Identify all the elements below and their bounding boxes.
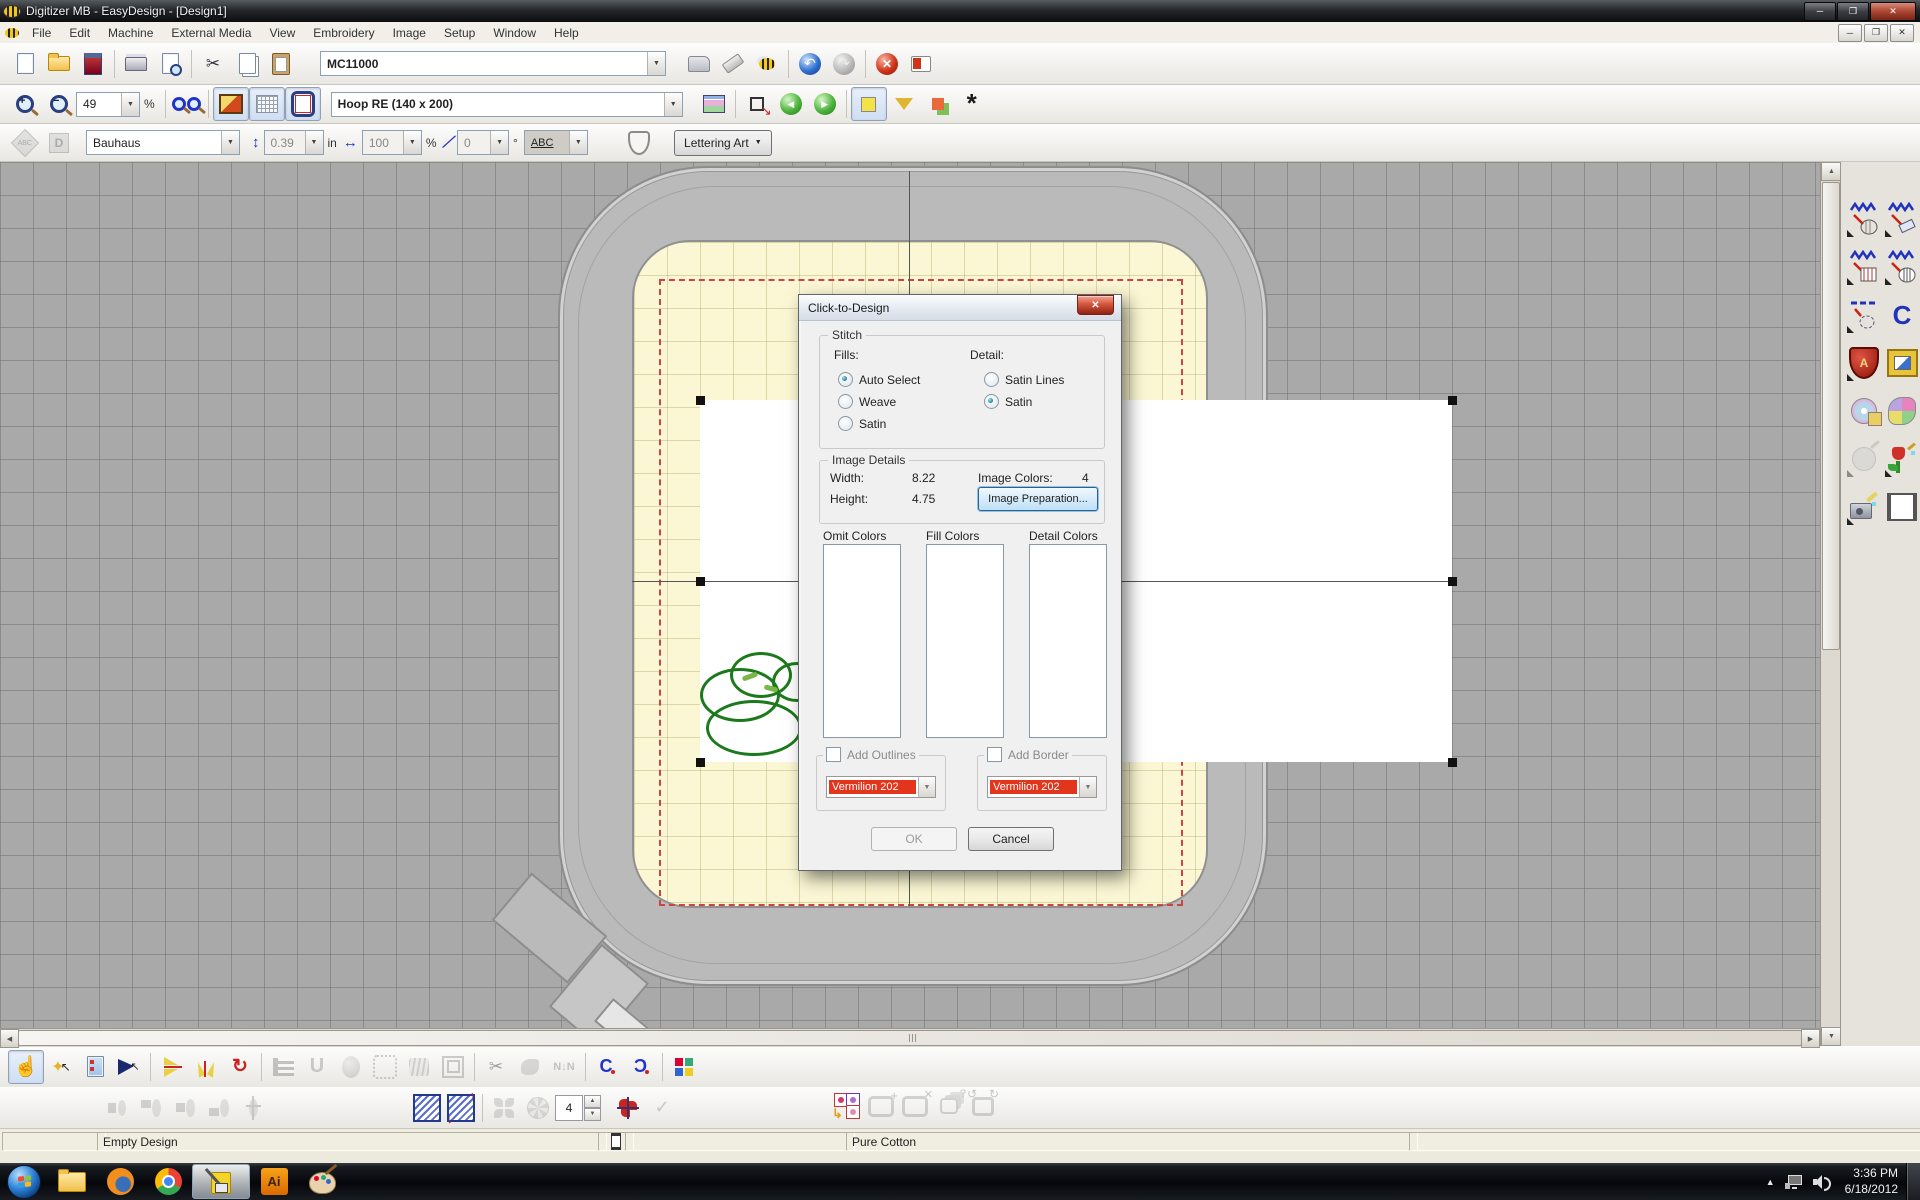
magic-wand-select-icon[interactable]: ✦↖: [44, 1051, 78, 1083]
radio-weave-icon[interactable]: [838, 394, 853, 409]
dialog-title-bar[interactable]: Click-to-Design: [799, 295, 1121, 321]
new-icon[interactable]: [8, 48, 42, 80]
shield-icon[interactable]: [622, 127, 656, 159]
letter-height-icon: ↕: [252, 134, 260, 151]
radio-satin-fill-icon[interactable]: [838, 416, 853, 431]
width-label: Width:: [830, 471, 864, 485]
monogram-abc-icon[interactable]: ABC: [8, 127, 42, 159]
hoop-select[interactable]: Hoop RE (140 x 200) ▼: [331, 92, 683, 117]
firefox-icon[interactable]: [96, 1164, 144, 1199]
letter-height-input[interactable]: 0.39 ▼: [264, 130, 324, 155]
stipple-fill-icon[interactable]: [368, 1051, 402, 1083]
texture-icon[interactable]: [513, 1051, 547, 1083]
baseline-select-value: ABC: [525, 137, 560, 149]
color-film-icon[interactable]: ↳: [830, 1090, 864, 1122]
spiral-fill-icon[interactable]: [436, 1051, 470, 1083]
stitch-group: Stitch Fills: Detail: Auto Select Weave …: [819, 335, 1105, 449]
machine-select-arrow-icon[interactable]: ▼: [647, 52, 665, 75]
curve-clockwise-icon[interactable]: C: [590, 1051, 624, 1083]
thread-colors-icon[interactable]: [667, 1051, 701, 1083]
paste-icon[interactable]: [264, 48, 298, 80]
menu-help[interactable]: Help: [545, 24, 588, 42]
align-bottom-icon[interactable]: [202, 1092, 236, 1124]
align-center-icon[interactable]: [168, 1092, 202, 1124]
image-colors-label: Image Colors:: [978, 471, 1053, 485]
add-border-check-icon[interactable]: [987, 747, 1002, 762]
status-bar: Empty Design Pure Cotton: [0, 1130, 1920, 1152]
vertical-scrollbar[interactable]: ▲ ▼: [1820, 162, 1841, 1046]
fill-stitch-ribbon-icon[interactable]: [1884, 200, 1920, 238]
detail-colors-label: Detail Colors: [1029, 529, 1098, 543]
picture-frame-icon[interactable]: [1884, 344, 1920, 382]
satin-fill-icon[interactable]: [1884, 248, 1920, 286]
add-hoop-icon[interactable]: +: [864, 1090, 898, 1122]
speaker-icon[interactable]: [1813, 1175, 1831, 1189]
baseline-select[interactable]: ABC ▼: [524, 130, 588, 155]
height-unit-label: in: [328, 136, 337, 150]
title-bar: Digitizer MB - EasyDesign - [Design1] ─ …: [0, 0, 1920, 22]
letter-height-value: 0.39: [265, 136, 300, 150]
zoom-unit-label: %: [144, 97, 155, 111]
wreath-icon[interactable]: [487, 1092, 521, 1124]
add-border-checkbox[interactable]: Add Border: [984, 747, 1072, 762]
show-objects-toggle[interactable]: [851, 87, 887, 121]
scroll-right-icon[interactable]: ▶: [1801, 1029, 1820, 1048]
detail-colors-list[interactable]: [1029, 544, 1107, 738]
add-outlines-group: Add Outlines Vermilion 202 ▼: [816, 755, 946, 811]
angle-unit-label: °: [513, 136, 518, 150]
letter-height-arrow-icon[interactable]: ▼: [305, 131, 323, 154]
selection-handle[interactable]: [1448, 758, 1457, 767]
letter-width-icon: ↔: [343, 134, 358, 151]
radio-weave[interactable]: Weave: [838, 394, 896, 409]
selection-handle[interactable]: [696, 396, 705, 405]
omit-colors-list[interactable]: [823, 544, 901, 738]
mirror-fan-icon[interactable]: [189, 1051, 223, 1083]
letter-slant-icon: ⟋: [443, 134, 454, 151]
add-border-group: Add Border Vermilion 202 ▼: [977, 755, 1107, 811]
menu-file[interactable]: File: [23, 24, 60, 42]
hoop-sequence-icon[interactable]: ?: [932, 1090, 966, 1122]
height-value: 4.75: [912, 492, 935, 506]
radio-satin-detail[interactable]: Satin: [984, 394, 1032, 409]
menu-view[interactable]: View: [260, 24, 304, 42]
backdrop-toggle[interactable]: [213, 87, 249, 121]
bee-icon[interactable]: [750, 48, 784, 80]
zoom-level-input[interactable]: 49 ▼: [76, 92, 140, 117]
application-window: Digitizer MB - EasyDesign - [Design1] ─ …: [0, 0, 1920, 1200]
weave-fill-icon[interactable]: [1846, 248, 1882, 286]
align-center-vertical-icon[interactable]: [134, 1092, 168, 1124]
scroll-down-icon[interactable]: ▼: [1821, 1027, 1842, 1046]
monogram-c-icon[interactable]: C: [1884, 296, 1920, 334]
flower-icon[interactable]: *: [955, 88, 989, 120]
image-preparation-button[interactable]: Image Preparation...: [978, 487, 1098, 511]
design-status: Empty Design: [97, 1132, 607, 1151]
zoom-level-value: 49: [77, 97, 102, 111]
edit-toolbar: ☝ ✦↖ ↖ ↻ U ✂ N↓N C C: [0, 1046, 1920, 1088]
radio-satin-fill[interactable]: Satin: [838, 416, 886, 431]
delete-hoop-icon[interactable]: ✕: [898, 1090, 932, 1122]
menu-window[interactable]: Window: [484, 24, 545, 42]
app-icon: [4, 6, 20, 17]
clipart-shape: [706, 700, 802, 756]
font-select[interactable]: Bauhaus ▼: [86, 130, 240, 155]
curve-counterclockwise-icon[interactable]: C: [624, 1051, 658, 1083]
radio-satin-lines-icon[interactable]: [984, 372, 999, 387]
chrome-icon[interactable]: [144, 1164, 192, 1199]
hatch-fill-toggle[interactable]: [410, 1092, 444, 1124]
status-cell-spacer: [625, 1132, 855, 1151]
fills-label: Fills:: [834, 348, 859, 362]
fill-colors-list[interactable]: [926, 544, 1004, 738]
stitch-group-label: Stitch: [828, 328, 866, 342]
back-icon[interactable]: ◀: [774, 88, 808, 120]
cut-icon[interactable]: ✂: [196, 48, 230, 80]
document-icon: [5, 28, 19, 38]
window-title: Digitizer MB - EasyDesign - [Design1]: [26, 4, 227, 18]
clock[interactable]: 3:36 PM 6/18/2012: [1845, 1166, 1898, 1197]
comb-fill-icon[interactable]: [266, 1051, 300, 1083]
print-preview-icon[interactable]: [153, 48, 187, 80]
color-photo-stitch-icon[interactable]: [1884, 440, 1920, 478]
write-to-machine-icon[interactable]: [76, 48, 110, 80]
click-to-design-toolbox: C A: [1840, 162, 1920, 1046]
contour-fill-icon[interactable]: [402, 1051, 436, 1083]
menu-machine[interactable]: Machine: [99, 24, 162, 42]
zoom-level-arrow-icon[interactable]: ▼: [121, 93, 139, 116]
horizontal-scroll-thumb[interactable]: [18, 1030, 1802, 1046]
letter-slant-value: 0: [458, 136, 477, 150]
clock-date: 6/18/2012: [1845, 1182, 1898, 1198]
horizontal-scrollbar[interactable]: ◀ ▶: [0, 1028, 1820, 1047]
network-icon[interactable]: [1785, 1175, 1803, 1189]
kaleidoscope-icon[interactable]: [521, 1092, 555, 1124]
fill-colors-label: Fill Colors: [926, 529, 979, 543]
arrange-toolbar: ↑↓ 4 ▲▼ ✓ ↳ + ✕ ? ↺↻: [0, 1087, 1920, 1129]
radio-satin-detail-icon[interactable]: [984, 394, 999, 409]
vertical-scroll-thumb[interactable]: [1822, 182, 1840, 650]
sewing-machine-icon[interactable]: [682, 48, 716, 80]
flip-vertical-icon[interactable]: [155, 1051, 189, 1083]
flower-patch-icon[interactable]: [1884, 392, 1920, 430]
redo-icon[interactable]: ↷: [827, 48, 861, 80]
taskbar: Ai ▲ 3:36 PM 6/18/2012: [0, 1163, 1920, 1200]
copy-icon[interactable]: [230, 48, 264, 80]
status-cell-empty: [2, 1132, 106, 1151]
scroll-up-icon[interactable]: ▲: [1821, 162, 1842, 181]
explorer-icon[interactable]: [48, 1164, 96, 1199]
repeat-count-up-icon[interactable]: ▲: [584, 1095, 601, 1108]
letter-width-arrow-icon[interactable]: ▼: [403, 131, 421, 154]
align-left-icon[interactable]: [100, 1092, 134, 1124]
selection-handle[interactable]: [1448, 577, 1457, 586]
cancel-button[interactable]: Cancel: [968, 827, 1054, 851]
circle-fill-icon[interactable]: [334, 1051, 368, 1083]
frame-outline-icon[interactable]: [1884, 488, 1920, 526]
hatch-direction-toggle[interactable]: ↑↓: [444, 1092, 478, 1124]
height-label: Height:: [830, 492, 868, 506]
fabric-status: Pure Cotton: [846, 1132, 1418, 1151]
font-select-arrow-icon[interactable]: ▼: [221, 131, 239, 154]
letter-width-input[interactable]: 100 ▼: [362, 130, 422, 155]
image-colors-value: 4: [1082, 471, 1089, 485]
mdi-close-button[interactable]: ✕: [1890, 24, 1914, 42]
repeat-count-input[interactable]: 4: [555, 1095, 583, 1121]
hoop-toggle[interactable]: [285, 87, 321, 121]
photo-stitch-icon[interactable]: [1846, 488, 1882, 526]
align-middle-icon[interactable]: [236, 1092, 270, 1124]
illustrator-icon[interactable]: Ai: [250, 1164, 298, 1199]
lettering-shield-icon[interactable]: A: [1846, 344, 1882, 382]
rotate-hoop-icon[interactable]: ↺↻: [966, 1090, 1000, 1122]
stitch-eraser-icon[interactable]: [716, 48, 750, 80]
close-button[interactable]: ✕: [1870, 2, 1916, 21]
font-select-value: Bauhaus: [87, 136, 146, 150]
omit-colors-label: Omit Colors: [823, 529, 886, 543]
add-outlines-check-icon[interactable]: [826, 747, 841, 762]
zoom-out-icon[interactable]: −: [42, 88, 76, 120]
border-color-swatch: Vermilion 202: [990, 780, 1077, 794]
paint-icon[interactable]: [298, 1164, 346, 1199]
undo-icon[interactable]: ↶: [793, 48, 827, 80]
menu-setup[interactable]: Setup: [435, 24, 484, 42]
selection-handle[interactable]: [696, 577, 705, 586]
outline-color-select[interactable]: Vermilion 202 ▼: [826, 776, 936, 798]
selection-handle[interactable]: [1448, 396, 1457, 405]
standard-toolbar: ✂ MC11000 ▼ ↶ ↷ ✕: [0, 43, 1920, 85]
select-tool-icon[interactable]: ☝: [8, 1050, 44, 1084]
design-info-icon[interactable]: [904, 48, 938, 80]
zoom-in-icon[interactable]: +: [8, 88, 42, 120]
clipart-cd-icon[interactable]: [1846, 392, 1882, 430]
start-button[interactable]: [0, 1164, 48, 1199]
print-icon[interactable]: [119, 48, 153, 80]
scroll-left-icon[interactable]: ◀: [0, 1029, 19, 1048]
width-value: 8.22: [912, 471, 935, 485]
outline-stitch-icon[interactable]: [1846, 296, 1882, 334]
radio-auto-select[interactable]: Auto Select: [838, 372, 920, 387]
stop-icon[interactable]: ✕: [870, 48, 904, 80]
border-color-arrow-icon[interactable]: ▼: [1079, 777, 1096, 797]
hoop-select-arrow-icon[interactable]: ▼: [664, 93, 682, 116]
show-desktop-button[interactable]: [1906, 1163, 1920, 1200]
menu-embroidery[interactable]: Embroidery: [304, 24, 383, 42]
radio-auto-select-icon[interactable]: [838, 372, 853, 387]
dialog-close-icon[interactable]: ✕: [1077, 295, 1114, 315]
ok-button[interactable]: OK: [871, 827, 957, 851]
machine-select[interactable]: MC11000 ▼: [320, 51, 666, 76]
taskbar-digitizer-active[interactable]: [192, 1164, 250, 1199]
lettering-art-button[interactable]: Lettering Art▼: [674, 130, 772, 156]
dialog-title: Click-to-Design: [808, 301, 889, 315]
width-unit-label: %: [426, 136, 437, 150]
machine-select-value: MC11000: [321, 57, 384, 71]
image-details-group: Image Details Width: 8.22 Height: 4.75 I…: [819, 460, 1105, 524]
view-toolbar: + − 49 ▼ % Hoop RE (140 x 200) ▼ ↘ ◀ ▶ *: [0, 85, 1920, 124]
send-to-view-icon[interactable]: ↘: [740, 88, 774, 120]
menu-image[interactable]: Image: [384, 24, 435, 42]
letter-slant-input[interactable]: 0 ▼: [457, 130, 509, 155]
menu-bar: File Edit Machine External Media View Em…: [0, 22, 1920, 44]
outline-color-arrow-icon[interactable]: ▼: [918, 777, 935, 797]
baseline-select-arrow-icon[interactable]: ▼: [569, 131, 587, 154]
maximize-button[interactable]: ❐: [1837, 2, 1869, 21]
forward-icon[interactable]: ▶: [808, 88, 842, 120]
click-to-design-dialog: Click-to-Design ✕ Stitch Fills: Detail: …: [798, 294, 1122, 871]
funnel-icon[interactable]: [887, 88, 921, 120]
monogram-d-icon[interactable]: D: [42, 127, 76, 159]
minimize-button[interactable]: ─: [1804, 2, 1836, 21]
lettering-toolbar: ABC D Bauhaus ▼ ↕ 0.39 ▼ in ↔ 100 ▼ % ⟋ …: [0, 124, 1920, 162]
overview-icon[interactable]: [170, 88, 204, 120]
mdi-minimize-button[interactable]: ─: [1838, 24, 1862, 42]
repeat-count-down-icon[interactable]: ▼: [584, 1108, 601, 1121]
kaleidoscope-axis-icon[interactable]: [611, 1092, 645, 1124]
status-cell-right: [1409, 1132, 1920, 1151]
clock-time: 3:36 PM: [1845, 1166, 1898, 1182]
object-properties-icon[interactable]: [78, 1051, 112, 1083]
letter-width-value: 100: [363, 136, 395, 150]
rotate-icon[interactable]: ↻: [223, 1051, 257, 1083]
detail-label: Detail:: [970, 348, 1004, 362]
add-outlines-checkbox[interactable]: Add Outlines: [823, 747, 919, 762]
auto-digitize-icon[interactable]: [1846, 440, 1882, 478]
menu-external-media[interactable]: External Media: [162, 24, 260, 42]
tray-expand-icon[interactable]: ▲: [1766, 1177, 1775, 1187]
turning-fill-icon[interactable]: U: [300, 1051, 334, 1083]
mdi-restore-button[interactable]: ❐: [1864, 24, 1888, 42]
reshape-icon[interactable]: ↖: [112, 1051, 146, 1083]
fill-stitch-shape-icon[interactable]: [1846, 200, 1882, 238]
outline-color-swatch: Vermilion 202: [829, 780, 916, 794]
trim-icon[interactable]: ✂: [479, 1051, 513, 1083]
letter-slant-arrow-icon[interactable]: ▼: [490, 131, 508, 154]
closest-join-icon[interactable]: N↓N: [547, 1051, 581, 1083]
border-color-select[interactable]: Vermilion 202 ▼: [987, 776, 1097, 798]
overview-window-icon[interactable]: [697, 88, 731, 120]
grid-toggle[interactable]: [249, 87, 285, 121]
selection-handle[interactable]: [696, 758, 705, 767]
image-details-label: Image Details: [828, 453, 909, 467]
color-clone-icon[interactable]: [921, 88, 955, 120]
radio-satin-lines[interactable]: Satin Lines: [984, 372, 1064, 387]
menu-edit[interactable]: Edit: [60, 24, 99, 42]
open-icon[interactable]: [42, 48, 76, 80]
apply-check-icon[interactable]: ✓: [645, 1092, 679, 1124]
hoop-select-value: Hoop RE (140 x 200): [332, 97, 459, 111]
